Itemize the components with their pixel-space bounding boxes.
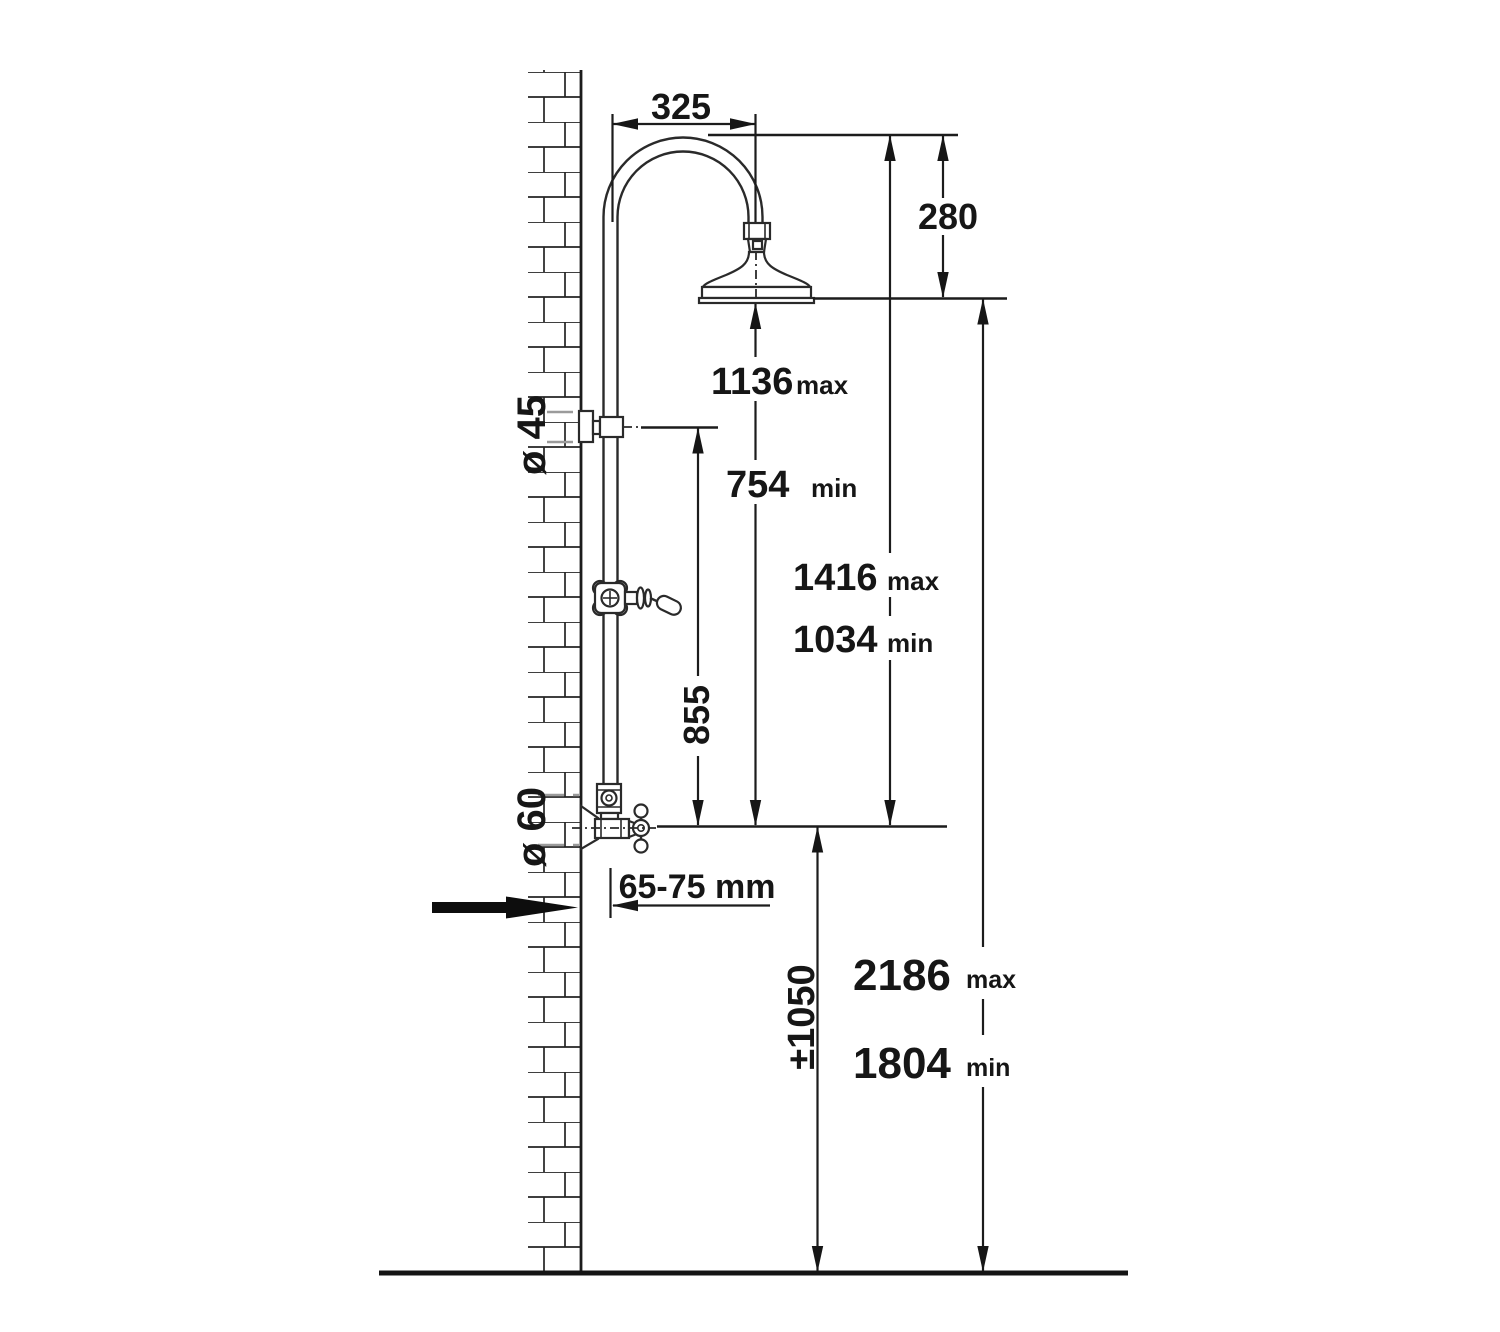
label-overall-max: 2186 xyxy=(853,951,951,1000)
label-wall-offset: 65-75 mm xyxy=(619,868,776,906)
label-inlet-diameter: ø 60 xyxy=(510,787,554,867)
handle-ball-top xyxy=(635,805,648,818)
label-inlet-height: ±1050 xyxy=(781,964,823,1069)
label-overall-max-unit: max xyxy=(966,966,1016,994)
lever-handle xyxy=(655,594,684,618)
head-union-nut xyxy=(744,223,770,239)
label-riser-min-unit: min xyxy=(811,473,857,503)
head-face-flange xyxy=(699,298,814,303)
lever-disc-1 xyxy=(637,588,644,609)
label-riser-min: 754 xyxy=(726,464,789,506)
head-neck-detail xyxy=(753,241,762,249)
label-riser-max-unit: max xyxy=(796,370,849,400)
diverter-valve xyxy=(593,581,683,617)
label-head-top-min-unit: min xyxy=(887,628,933,658)
lever-stem xyxy=(625,592,637,604)
technical-drawing-canvas: 325 280 1136 max 754 min 1416 max 1034 m… xyxy=(0,0,1500,1332)
label-head-top-max-unit: max xyxy=(887,566,940,596)
label-overall-min-unit: min xyxy=(966,1054,1010,1082)
shower-column-diagram: 325 280 1136 max 754 min 1416 max 1034 m… xyxy=(0,0,1500,1332)
label-head-top-min: 1034 xyxy=(793,619,878,661)
union-nut-ring xyxy=(602,791,617,806)
label-bracket-diameter: ø 45 xyxy=(510,395,554,475)
label-head-drop: 280 xyxy=(918,196,978,237)
shower-head xyxy=(699,223,814,303)
label-head-top-max: 1416 xyxy=(793,557,878,599)
label-riser-max: 1136 xyxy=(711,361,793,403)
label-overall-min: 1804 xyxy=(853,1039,951,1088)
bracket-clamp-block xyxy=(600,417,623,437)
bracket-wall-plate xyxy=(579,411,593,442)
handle-ball-bottom xyxy=(635,840,648,853)
brick-wall-body xyxy=(528,70,581,1272)
gooseneck-inner xyxy=(618,152,749,225)
brick-wall xyxy=(528,70,581,1272)
label-arm-projection: 325 xyxy=(651,86,711,127)
label-diverter-height: 855 xyxy=(676,685,717,745)
